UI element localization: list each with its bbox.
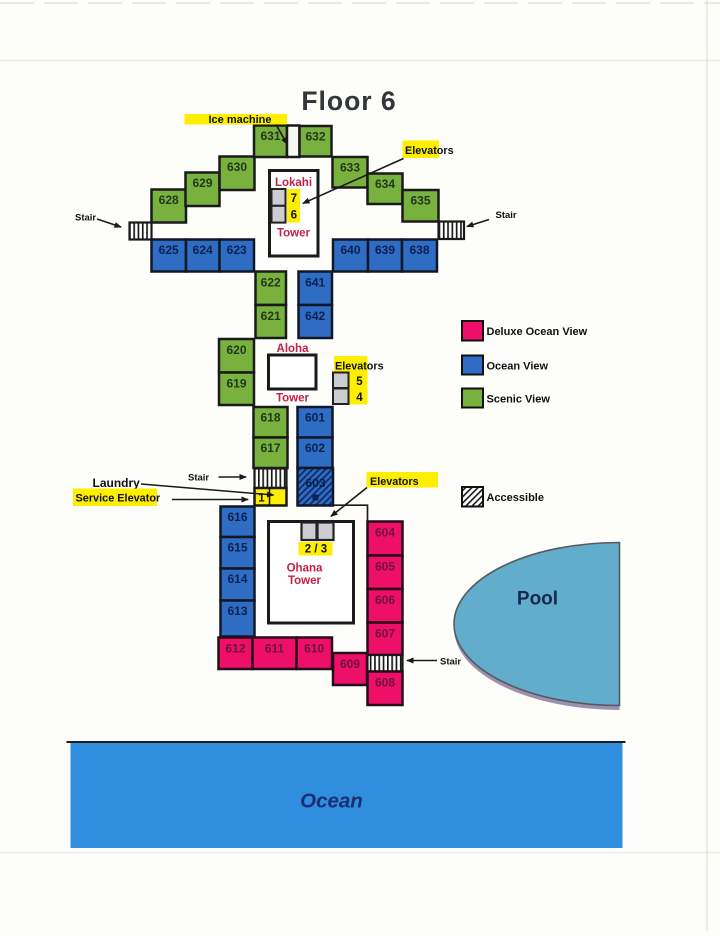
svg-text:629: 629 xyxy=(192,176,212,190)
svg-text:624: 624 xyxy=(193,243,213,257)
svg-text:619: 619 xyxy=(226,377,246,391)
svg-text:634: 634 xyxy=(375,177,395,191)
svg-text:Scenic View: Scenic View xyxy=(487,393,551,405)
svg-text:Lokahi: Lokahi xyxy=(275,177,312,189)
svg-text:Deluxe Ocean View: Deluxe Ocean View xyxy=(487,326,588,338)
svg-text:Stair: Stair xyxy=(496,210,517,221)
svg-text:Elevators: Elevators xyxy=(335,361,384,373)
svg-text:Stair: Stair xyxy=(75,213,96,224)
svg-text:Ocean: Ocean xyxy=(300,790,363,813)
svg-text:Tower: Tower xyxy=(288,575,322,587)
svg-text:611: 611 xyxy=(265,642,285,656)
svg-text:620: 620 xyxy=(226,343,246,357)
svg-text:610: 610 xyxy=(304,642,324,656)
svg-text:630: 630 xyxy=(227,160,247,174)
svg-text:Tower: Tower xyxy=(277,228,311,240)
svg-text:Tower: Tower xyxy=(276,393,310,405)
svg-text:608: 608 xyxy=(375,676,395,690)
svg-text:614: 614 xyxy=(227,572,247,586)
svg-text:Stair: Stair xyxy=(188,473,209,484)
svg-text:635: 635 xyxy=(410,194,430,208)
svg-text:7: 7 xyxy=(291,193,297,205)
svg-text:5: 5 xyxy=(356,376,363,388)
svg-text:Ice machine: Ice machine xyxy=(209,114,272,126)
svg-text:Stair: Stair xyxy=(440,657,461,668)
svg-text:Aloha: Aloha xyxy=(277,343,310,355)
svg-text:603: 603 xyxy=(305,476,325,490)
svg-text:633: 633 xyxy=(340,161,360,175)
svg-text:4: 4 xyxy=(356,392,363,404)
svg-text:632: 632 xyxy=(305,130,325,144)
svg-text:Accessible: Accessible xyxy=(487,492,544,504)
svg-text:628: 628 xyxy=(159,193,179,207)
svg-text:639: 639 xyxy=(375,243,395,257)
svg-text:642: 642 xyxy=(305,309,325,323)
svg-text:605: 605 xyxy=(375,560,395,574)
svg-text:631: 631 xyxy=(260,129,280,143)
svg-text:2 / 3: 2 / 3 xyxy=(305,544,327,556)
svg-text:604: 604 xyxy=(375,526,395,540)
svg-text:6: 6 xyxy=(291,210,297,222)
svg-text:Elevators: Elevators xyxy=(405,145,454,157)
svg-text:613: 613 xyxy=(227,604,247,618)
svg-text:641: 641 xyxy=(305,276,325,290)
svg-text:612: 612 xyxy=(225,642,245,656)
svg-text:625: 625 xyxy=(159,243,179,257)
svg-text:640: 640 xyxy=(340,243,360,257)
svg-text:618: 618 xyxy=(260,411,280,425)
svg-text:615: 615 xyxy=(227,541,247,555)
svg-text:Elevators: Elevators xyxy=(370,476,419,488)
svg-text:623: 623 xyxy=(227,243,247,257)
svg-text:601: 601 xyxy=(305,411,325,425)
svg-text:Ocean View: Ocean View xyxy=(487,360,549,372)
svg-text:Floor 6: Floor 6 xyxy=(301,86,396,116)
svg-text:621: 621 xyxy=(261,309,281,323)
svg-text:616: 616 xyxy=(227,510,247,524)
svg-text:622: 622 xyxy=(261,276,281,290)
svg-text:607: 607 xyxy=(375,627,395,641)
svg-text:609: 609 xyxy=(340,657,360,671)
svg-text:Pool: Pool xyxy=(517,589,558,610)
svg-text:Service Elevator: Service Elevator xyxy=(76,493,162,505)
svg-text:617: 617 xyxy=(260,441,280,455)
svg-text:Laundry: Laundry xyxy=(93,476,141,490)
svg-text:606: 606 xyxy=(375,593,395,607)
svg-text:602: 602 xyxy=(305,441,325,455)
svg-text:638: 638 xyxy=(409,243,429,257)
svg-text:Ohana: Ohana xyxy=(287,563,323,575)
